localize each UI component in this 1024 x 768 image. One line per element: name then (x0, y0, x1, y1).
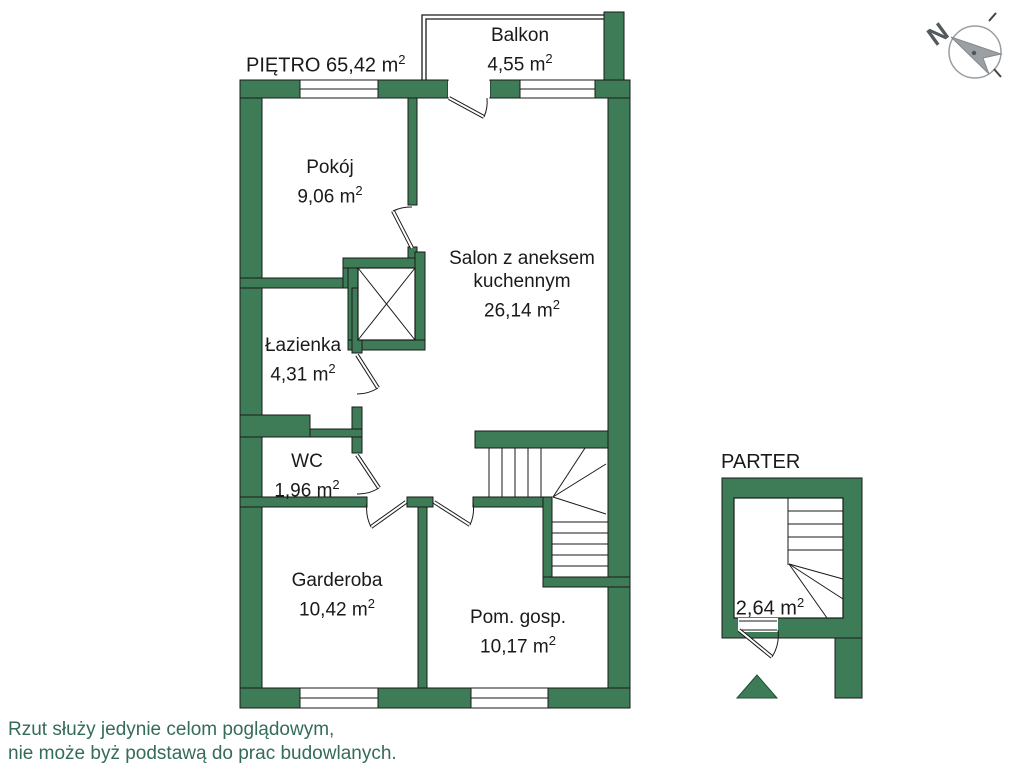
door-swing-arc (470, 502, 474, 525)
room-area-sup: 2 (797, 595, 804, 610)
room-label-balkon: Balkon 4,55 m2 (487, 24, 552, 76)
room-area: 26,14 m (484, 300, 553, 321)
room-area-sup: 2 (553, 297, 560, 312)
wall-top-seg (240, 80, 300, 98)
compass-tick (994, 69, 1001, 77)
wall-hall-bottom-seg (407, 497, 433, 507)
room-area-sup: 2 (355, 183, 362, 198)
wall-shaft-top (343, 258, 425, 268)
wall-shaft-right (415, 252, 425, 350)
door-balkon (449, 98, 487, 117)
wall-lazienka-bottom-left (240, 415, 310, 437)
room-name: Garderoba (292, 570, 383, 591)
room-label-pokoj: Pokój 9,06 m2 (297, 156, 362, 208)
wall-wc-right-stub (352, 437, 362, 453)
compass-tick (989, 13, 996, 21)
compass-icon: N (921, 13, 1001, 78)
door-garderoba (367, 502, 406, 527)
stair-winder (553, 448, 585, 497)
disclaimer: Rzut służy jedynie celom poglądowym, nie… (8, 718, 397, 766)
wall-pokoj-bottom (240, 278, 353, 288)
door-wc (357, 455, 379, 494)
room-label-pomgosp: Pom. gosp. 10,17 m2 (470, 606, 566, 658)
disclaimer-line1: Rzut służy jedynie celom poglądowym, (8, 718, 397, 742)
door-leaf (357, 455, 379, 488)
room-area-sup: 2 (328, 361, 335, 376)
door-lazienka (357, 355, 378, 394)
entrance-arrow-icon (737, 675, 777, 698)
room-label-salon: Salon z aneksem kuchennym 26,14 m2 (449, 247, 595, 322)
parter-plan (722, 478, 862, 698)
wall-right (608, 80, 630, 708)
wall-top-seg (595, 80, 630, 98)
wall-stair-left (543, 497, 552, 587)
room-area: 4,31 m (270, 364, 328, 385)
wall-left (240, 80, 262, 708)
door-leaf (449, 98, 484, 117)
room-area-sup: 2 (332, 477, 339, 492)
room-area: 2,64 m (736, 598, 797, 620)
room-name: Pokój (306, 157, 354, 178)
door-swing-arc (393, 207, 412, 211)
door-swing-arc (484, 98, 487, 117)
shaft-box (358, 268, 415, 340)
wall-lazienka-bottom-right (310, 429, 362, 437)
stair-winder (553, 464, 606, 497)
room-area: 4,55 m (487, 54, 545, 75)
room-area-sup: 2 (545, 51, 552, 66)
room-name: Pom. gosp. (470, 607, 566, 628)
room-name: Balkon (491, 25, 549, 46)
parter-area-label: 2,64 m2 (736, 591, 804, 621)
plan-title-text: PIĘTRO 65,42 m (246, 55, 398, 77)
parter-wall-extension (835, 638, 862, 698)
plan-title: PIĘTRO 65,42 m2 (246, 48, 406, 78)
plan-title-sup: 2 (398, 52, 405, 67)
balcony-side-wall (604, 12, 624, 80)
door-leaf (393, 211, 412, 248)
wall-bottom-seg (240, 688, 300, 708)
room-name: Łazienka (265, 335, 341, 356)
room-name: WC (291, 451, 323, 472)
room-name: kuchennym (473, 271, 570, 292)
room-area: 10,42 m (299, 599, 368, 620)
floorplan-page: N PIĘTRO 65,42 m2 Balkon 4,55 m2 Pokój 9… (0, 0, 1024, 768)
door-swing-arc (357, 388, 378, 394)
compass-center-dot (972, 51, 976, 55)
wall-stair-top (475, 431, 608, 448)
room-label-lazienka: Łazienka 4,31 m2 (265, 334, 341, 386)
balcony-door-opening (448, 81, 490, 97)
room-area-sup: 2 (368, 596, 375, 611)
stair-winder (553, 497, 606, 514)
wall-garderoba-pomgosp-divider (418, 507, 427, 688)
parter-title: PARTER (721, 450, 800, 474)
wall-pokoj-right (408, 98, 417, 205)
room-name: Salon z aneksem (449, 248, 595, 269)
room-label-garderoba: Garderoba 10,42 m2 (292, 569, 383, 621)
door-leaf (371, 502, 406, 527)
wall-lazienka-right-stub (352, 407, 362, 429)
wall-hall-bottom-seg (473, 497, 552, 507)
room-area: 9,06 m (297, 186, 355, 207)
room-area-sup: 2 (549, 633, 556, 648)
parter-title-text: PARTER (721, 451, 800, 473)
door-pokoj (393, 207, 412, 248)
door-swing-arc (357, 488, 379, 494)
door-leaf (357, 355, 378, 388)
wall-bottom-seg (378, 688, 471, 708)
wall-bottom-seg (548, 688, 630, 708)
wall-stair-bottom (543, 577, 630, 587)
room-label-wc: WC 1,96 m2 (274, 450, 339, 502)
wall-top-seg (378, 80, 448, 98)
room-area: 1,96 m (274, 480, 332, 501)
door-pomgosp (434, 502, 474, 525)
door-leaf (434, 502, 470, 525)
disclaimer-line2: nie może byż podstawą do prac budowlanyc… (8, 742, 397, 766)
wall-top-seg (490, 80, 520, 98)
room-area: 10,17 m (480, 636, 549, 657)
